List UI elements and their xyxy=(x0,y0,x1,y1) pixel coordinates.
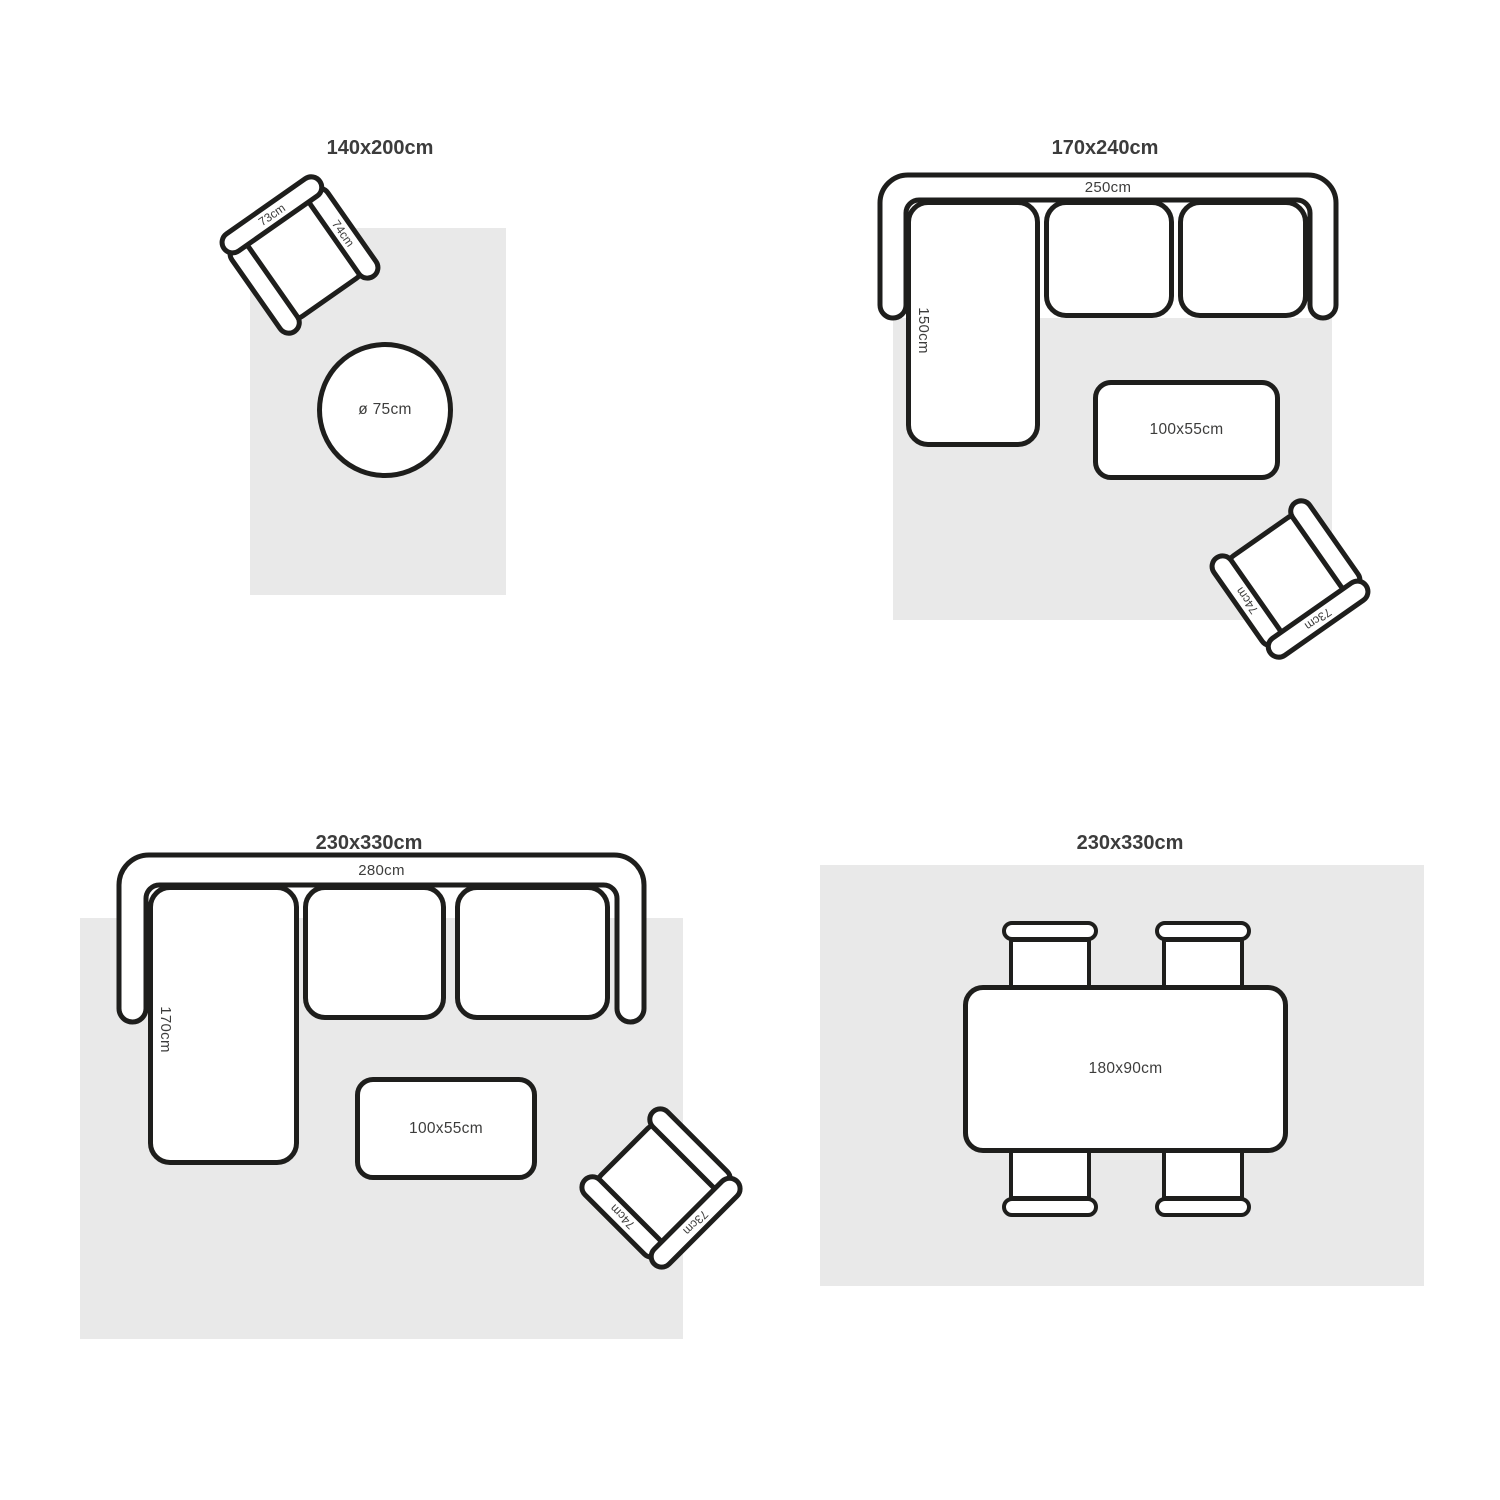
dining-chair-seat xyxy=(1009,1145,1091,1200)
panel-title: 170x240cm xyxy=(1052,137,1159,160)
sofa-width-label: 280cm xyxy=(119,855,644,885)
sofa-chaise-depth-label: 170cm xyxy=(155,998,175,1060)
round-side-table: ø 75cm xyxy=(317,342,453,478)
dining-table-label: 180x90cm xyxy=(1089,1060,1163,1078)
armchair-back-width-label: 73cm xyxy=(1303,606,1334,633)
coffee-table: 100x55cm xyxy=(355,1077,537,1180)
dining-chair-back xyxy=(1155,921,1251,941)
dining-chair-back xyxy=(1002,1197,1098,1217)
round-side-table-label: ø 75cm xyxy=(358,401,411,419)
dining-table: 180x90cm xyxy=(963,985,1288,1153)
coffee-table-label: 100x55cm xyxy=(1150,421,1224,439)
coffee-table: 100x55cm xyxy=(1093,380,1280,480)
sofa-chaise-depth-label: 150cm xyxy=(913,299,933,361)
dining-chair-seat xyxy=(1162,1145,1244,1200)
dining-chair-back xyxy=(1155,1197,1251,1217)
coffee-table-label: 100x55cm xyxy=(409,1120,483,1138)
dining-chair-back xyxy=(1002,921,1098,941)
panel-title: 140x200cm xyxy=(327,137,434,160)
panel-title: 230x330cm xyxy=(1077,832,1184,855)
rug-size-guide: 140x200cm 74cm 73cm ø 75cm 170x240cm 250… xyxy=(0,0,1500,1500)
sofa-width-label: 250cm xyxy=(880,175,1336,200)
